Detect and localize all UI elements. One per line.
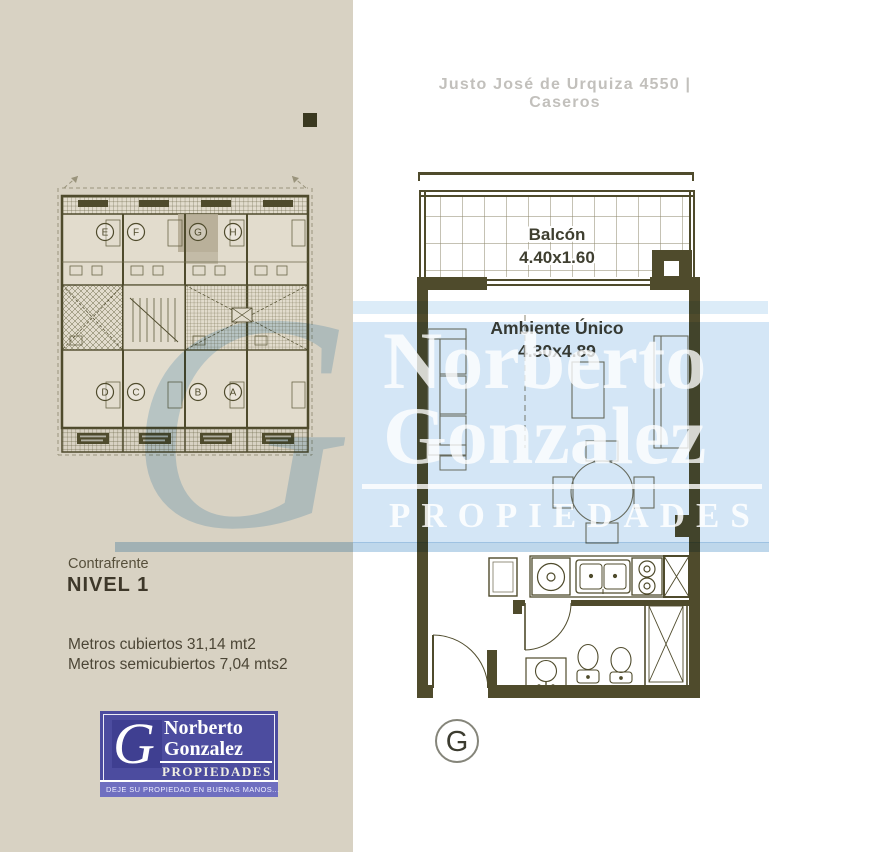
service-shaft (664, 556, 689, 597)
balcony-label: Balcón (529, 225, 586, 244)
balcony-dimensions: 4.40x1.60 (519, 248, 595, 267)
unit-letter-badge: G (436, 720, 478, 762)
guide-arrow-left (71, 176, 78, 183)
room-dimensions: 4.30x4.89 (518, 341, 596, 361)
entry-door (433, 635, 488, 688)
covered-area-text: Metros cubiertos 31,14 mt2 (68, 636, 256, 654)
guide-arrow-right (292, 176, 299, 183)
semicovered-area-text: Metros semicubiertos 7,04 mts2 (68, 656, 288, 674)
logo-name-line1: Norberto (164, 717, 243, 740)
wardrobe (654, 336, 688, 448)
unit-letter-a: A (230, 388, 237, 399)
bathroom-partition (487, 600, 700, 688)
unit-letter-b: B (195, 388, 202, 399)
unit-letter-e: E (102, 228, 109, 239)
unit-letter-main: G (446, 726, 469, 758)
dining-table (553, 441, 654, 543)
level-plan-drawing: E F G H D C B A (50, 175, 315, 467)
logo-tagline: DEJE SU PROPIEDAD EN BUENAS MANOS... (106, 785, 280, 794)
sliding-door (487, 279, 650, 286)
sofa (428, 329, 466, 455)
agency-logo: G Norberto Gonzalez PROPIEDADES DEJE SU … (100, 711, 278, 797)
room-label: Ambiente Único (490, 317, 623, 338)
shower (645, 602, 687, 686)
unit-letter-g-mini: G (194, 228, 202, 239)
unit-letter-c: C (132, 388, 139, 399)
unit-letter-f: F (133, 228, 139, 239)
logo-subtitle: PROPIEDADES (162, 764, 272, 780)
toilet (577, 645, 599, 684)
flyer-page: Justo José de Urquiza 4550 | Caseros (0, 0, 896, 852)
logo-divider-rule (160, 761, 272, 763)
address-header: Justo José de Urquiza 4550 | Caseros (410, 76, 720, 112)
unit-letter-d: D (101, 388, 108, 399)
logo-name-line2: Gonzalez (164, 738, 243, 761)
stair-core (123, 285, 185, 350)
logo-monogram: G (102, 713, 166, 777)
section-marker (303, 113, 317, 127)
bathroom-door (525, 603, 571, 650)
level-label: NIVEL 1 (67, 574, 149, 597)
low-table (572, 362, 604, 418)
logo-tagline-strip: DEJE SU PROPIEDAD EN BUENAS MANOS... (100, 780, 278, 797)
roof-line (418, 172, 694, 181)
unit-plan-drawing: Balcón 4.40x1.60 Ambiente Único 4.30x4.8… (400, 165, 710, 780)
orientation-label: Contrafrente (68, 556, 149, 572)
side-table (440, 456, 466, 470)
unit-letter-h: H (229, 228, 236, 239)
balcony-column-void (664, 261, 679, 276)
bidet (610, 648, 632, 684)
bathroom-sink (526, 658, 566, 689)
